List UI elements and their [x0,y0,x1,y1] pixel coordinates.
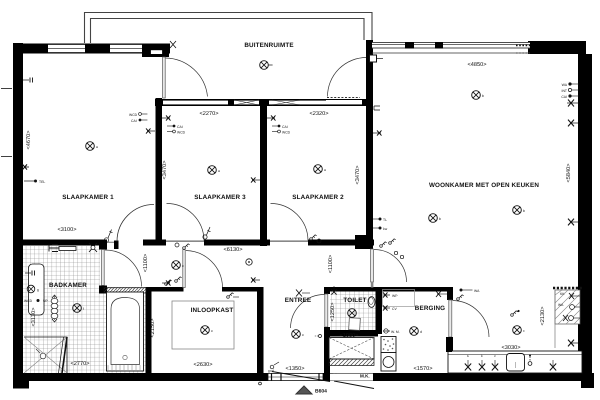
svg-text:<3100>: <3100> [58,227,77,233]
svg-text:KK: KK [560,292,565,296]
svg-text:WOONKAMER MET OPEN KEUKEN: WOONKAMER MET OPEN KEUKEN [429,182,539,189]
svg-text:e: e [182,264,184,268]
svg-text:<3030>: <3030> [502,345,521,351]
svg-text:CAI: CAI [561,95,567,99]
svg-text:<6130>: <6130> [224,247,243,253]
svg-text:INT: INT [562,89,567,93]
svg-text:WP: WP [392,294,398,298]
svg-text:M.K.: M.K. [360,373,370,378]
svg-text:TOILET: TOILET [343,297,366,304]
svg-text:SLAAPKAMER 2: SLAAPKAMER 2 [292,194,344,201]
svg-text:CV: CV [392,307,397,311]
svg-text:k: k [481,354,483,358]
svg-text:e: e [211,329,213,333]
svg-text:WCD: WCD [129,113,138,117]
svg-text:SLAAPKAMER 1: SLAAPKAMER 1 [62,194,114,201]
svg-text:<2770>: <2770> [71,361,90,367]
svg-text:BADKAMER: BADKAMER [49,282,87,289]
svg-text:kw: kw [383,227,388,231]
svg-text:WCD: WCD [24,299,33,303]
svg-text:<2270>: <2270> [200,111,219,117]
svg-text:<1570>: <1570> [414,366,433,372]
svg-text:WCD: WCD [177,131,186,135]
svg-text:f: f [83,307,84,311]
svg-text:gnd: gnd [268,369,274,373]
svg-text:TEL: TEL [39,180,45,184]
svg-text:d: d [420,330,422,334]
svg-text:WCD: WCD [282,131,291,135]
svg-text:<2630>: <2630> [194,362,213,368]
svg-text:<4850>: <4850> [468,62,487,68]
svg-text:g: g [37,288,39,292]
svg-text:<4670>: <4670> [26,131,32,150]
svg-text:BERGING: BERGING [415,305,445,312]
svg-text:<5840>: <5840> [566,164,572,183]
svg-text:e: e [302,333,304,337]
svg-text:CAI: CAI [131,119,137,123]
svg-text:W. M.: W. M. [391,330,400,334]
svg-text:a: a [96,145,98,149]
svg-text:INLOOPKAST: INLOOPKAST [191,307,234,314]
svg-text:<2150>: <2150> [150,319,156,338]
svg-text:CAI: CAI [177,125,183,129]
svg-text:SLAAPKAMER 3: SLAAPKAMER 3 [194,194,246,201]
svg-text:<2130>: <2130> [540,307,546,326]
svg-text:<1100>: <1100> [328,255,334,274]
svg-text:<3470>: <3470> [355,166,361,185]
svg-text:b: b [482,94,484,98]
svg-text:<1350>: <1350> [286,366,305,372]
svg-text:WA: WA [562,83,568,87]
svg-text:v: v [494,354,496,358]
svg-text:UP: UP [43,299,48,303]
svg-text:<3130>: <3130> [31,308,37,327]
svg-text:c: c [523,329,525,333]
svg-text:b: b [523,209,525,213]
svg-text:<1250>: <1250> [330,303,336,322]
svg-text:<3470>: <3470> [162,161,168,180]
svg-text:CAI: CAI [282,125,288,129]
svg-text:WA: WA [558,303,564,307]
svg-text:s: s [467,354,469,358]
svg-text:B604: B604 [315,389,327,395]
svg-text:a: a [218,169,220,173]
svg-text:WA: WA [474,289,480,293]
svg-text:a: a [324,168,326,172]
svg-text:<1100>: <1100> [143,254,149,273]
svg-text:TL: TL [383,218,387,222]
svg-text:<1080>: <1080> [340,333,359,339]
svg-text:BUITENRUIMTE: BUITENRUIMTE [244,42,293,49]
svg-text:<2320>: <2320> [310,111,329,117]
svg-text:b: b [439,217,441,221]
svg-text:ENTREE: ENTREE [285,297,311,304]
